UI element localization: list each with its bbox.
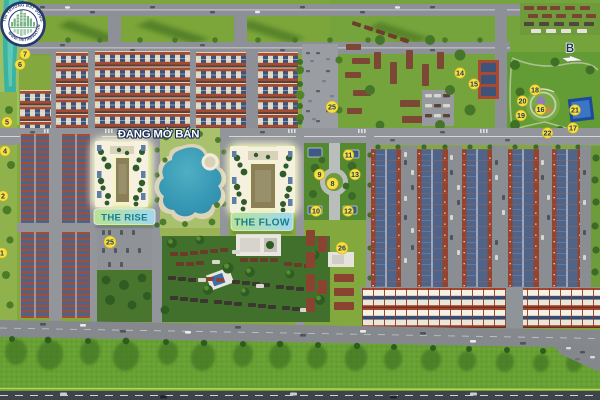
svg-text:16: 16 [537,105,545,114]
svg-text:18: 18 [531,86,539,95]
svg-text:THE RISE: THE RISE [101,212,148,223]
svg-text:14: 14 [456,69,464,78]
svg-text:2: 2 [1,192,5,201]
svg-text:25: 25 [328,103,336,112]
svg-text:12: 12 [344,207,352,216]
svg-text:1: 1 [0,249,4,258]
svg-text:15: 15 [470,80,478,89]
svg-text:22: 22 [544,129,552,138]
svg-text:7: 7 [23,50,27,59]
svg-text:9: 9 [318,170,322,179]
svg-text:11: 11 [345,151,353,160]
svg-text:17: 17 [569,124,577,133]
svg-text:13: 13 [351,170,359,179]
svg-text:19: 19 [517,111,525,120]
svg-text:20: 20 [519,97,527,106]
svg-text:21: 21 [571,106,579,115]
svg-text:B: B [566,43,574,55]
svg-text:26: 26 [338,244,346,253]
svg-text:4: 4 [3,147,7,156]
svg-text:25: 25 [106,238,114,247]
svg-text:8: 8 [331,179,335,188]
svg-text:5: 5 [5,118,9,127]
svg-text:THE FLOW: THE FLOW [234,218,290,229]
svg-text:6: 6 [18,60,22,69]
svg-text:ĐANG MỞ BÁN: ĐANG MỞ BÁN [118,128,200,141]
svg-text:10: 10 [312,207,320,216]
